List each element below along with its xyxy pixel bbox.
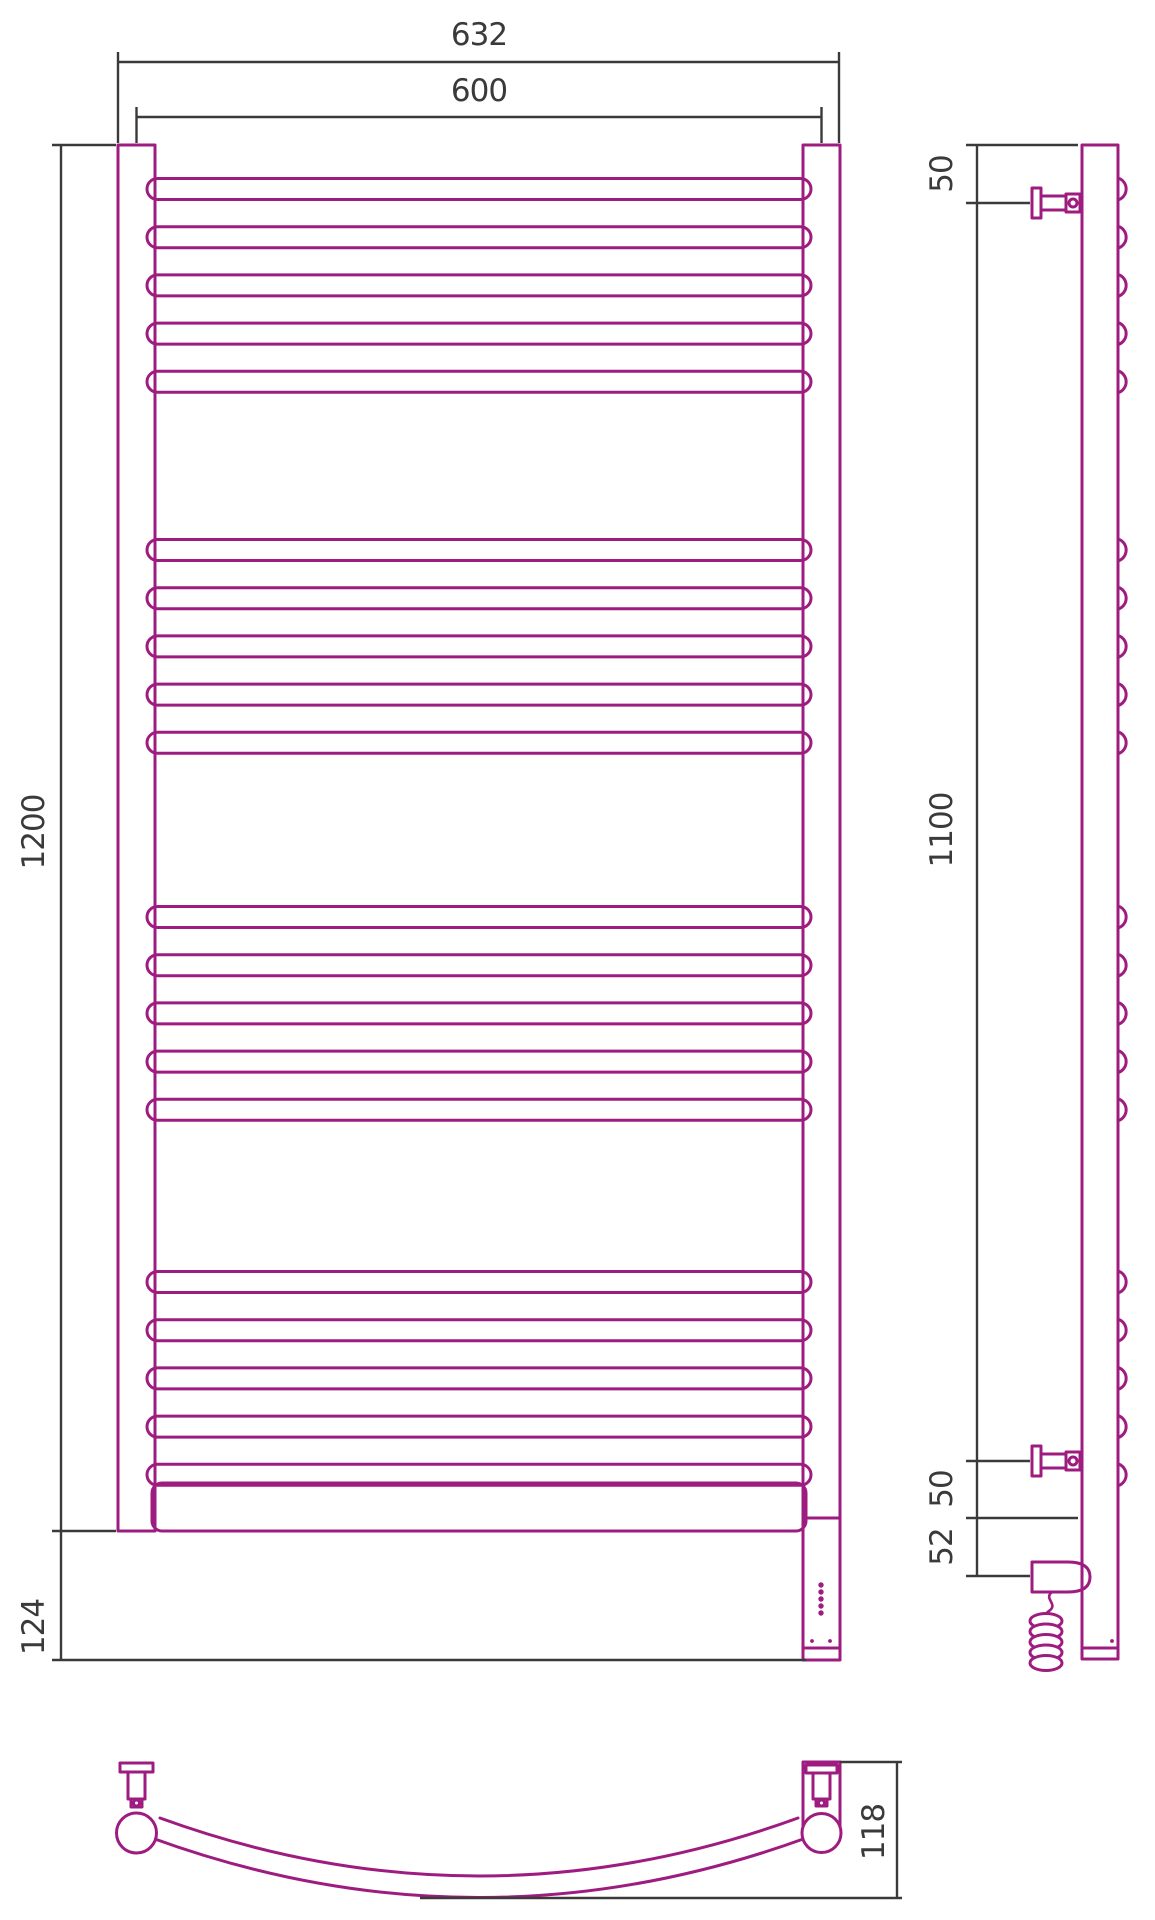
dim-label-1200: 1200 (16, 795, 52, 870)
rung (147, 1368, 811, 1389)
dim-label-124: 124 (16, 1599, 52, 1655)
led-indicator-dots (818, 1582, 823, 1615)
rung (147, 1003, 811, 1024)
bracket-joint-pin (134, 1800, 140, 1806)
bracket-stem (1041, 1454, 1066, 1468)
led-dot (818, 1596, 823, 1601)
rung (147, 907, 811, 928)
front-rungs (147, 179, 811, 1486)
bracket-stem (128, 1772, 145, 1799)
rung (147, 1051, 811, 1072)
top-view-right-unit (802, 1762, 841, 1853)
rung (147, 684, 811, 705)
post-section-circle (117, 1813, 157, 1853)
side-bottom-bracket (1032, 1446, 1080, 1476)
bracket-stem (813, 1773, 830, 1799)
rung (147, 275, 811, 296)
bracket-stem (1041, 196, 1066, 210)
rung (147, 588, 811, 609)
bracket-joint-pin (1069, 199, 1077, 207)
dim-label-52: 52 (924, 1528, 960, 1565)
screw-dot (1110, 1639, 1114, 1643)
dimension-1200: 1200 (16, 145, 116, 1531)
rung (147, 955, 811, 976)
dimension-124: 124 (16, 1531, 806, 1660)
rung (147, 1099, 811, 1120)
dim-label-1100: 1100 (924, 793, 960, 868)
rung (147, 1272, 811, 1293)
top-view: 118 (117, 1762, 903, 1898)
dim-label-632: 632 (451, 17, 507, 53)
dim-label-600: 600 (451, 73, 507, 109)
bottom-collector-tube (152, 1483, 806, 1531)
rung (147, 540, 811, 561)
dim-label-50-top: 50 (924, 155, 960, 192)
rung (147, 371, 811, 392)
led-dot (818, 1603, 823, 1608)
post-section-circle (802, 1814, 841, 1853)
screw-dot (828, 1639, 832, 1643)
cable-coil-loop (1030, 1656, 1062, 1671)
led-dot (818, 1582, 823, 1587)
bracket-joint-pin (1069, 1457, 1077, 1465)
rung (147, 227, 811, 248)
towel-rail-drawing: 632 600 1200 124 50 1100 50 52 (0, 0, 1155, 1920)
dim-label-118: 118 (856, 1804, 892, 1860)
dim-label-50-bottom: 50 (924, 1470, 960, 1507)
rung (147, 1416, 811, 1437)
rung (147, 323, 811, 344)
cable-coil (1030, 1614, 1062, 1671)
led-dot (818, 1589, 823, 1594)
rung (147, 636, 811, 657)
led-dot (818, 1610, 823, 1615)
front-view (118, 145, 840, 1660)
screw-dot (810, 1639, 814, 1643)
technical-drawing-canvas: 632 600 1200 124 50 1100 50 52 (0, 0, 1155, 1920)
side-top-bracket (1032, 188, 1080, 218)
arc-inner-line (160, 1818, 798, 1876)
rung (147, 1320, 811, 1341)
side-post (1082, 145, 1118, 1659)
bracket-joint-pin (819, 1800, 825, 1806)
side-view: 50 1100 50 52 (924, 145, 1126, 1671)
dimension-600: 600 (137, 73, 822, 143)
rung (147, 179, 811, 200)
top-view-left-bracket (117, 1763, 157, 1853)
rung (147, 732, 811, 753)
